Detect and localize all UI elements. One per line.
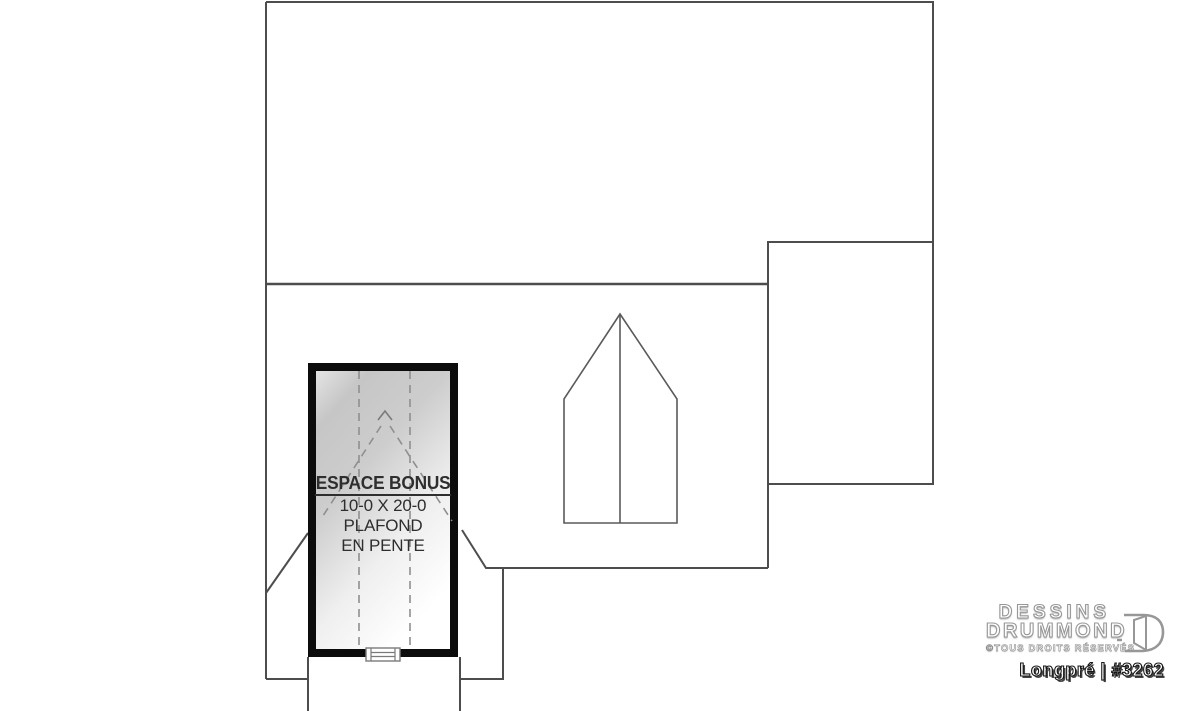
floor-plan-page: ESPACE BONUS 10-0 X 20-0 PLAFOND EN PENT…	[0, 0, 1200, 711]
lower-roof-right-step	[460, 568, 503, 679]
brand-name-line-2: DRUMMOND	[986, 622, 1109, 641]
brand-rights-notice: ©TOUS DROITS RÉSERVÉS	[986, 643, 1107, 654]
lower-roof-left-valley	[266, 533, 308, 593]
window-symbol	[366, 648, 400, 661]
room-title: ESPACE BONUS	[315, 474, 452, 496]
plan-name-number: Longpré | #3262	[986, 660, 1164, 681]
right-wing-outline	[768, 242, 933, 568]
room-note-line-2: EN PENTE	[312, 536, 454, 556]
branding-block: DESSINS DRUMMOND ©TOUS DROITS RÉSERVÉS L…	[986, 603, 1164, 681]
room-dimensions: 10-0 X 20-0	[312, 496, 454, 516]
upper-roof-outline-top-right	[266, 2, 933, 242]
drummond-door-icon	[1116, 605, 1168, 659]
room-note-line-1: PLAFOND	[312, 516, 454, 536]
lower-roof-right-valley	[462, 530, 768, 568]
bonus-room-label: ESPACE BONUS 10-0 X 20-0 PLAFOND EN PENT…	[312, 474, 454, 556]
